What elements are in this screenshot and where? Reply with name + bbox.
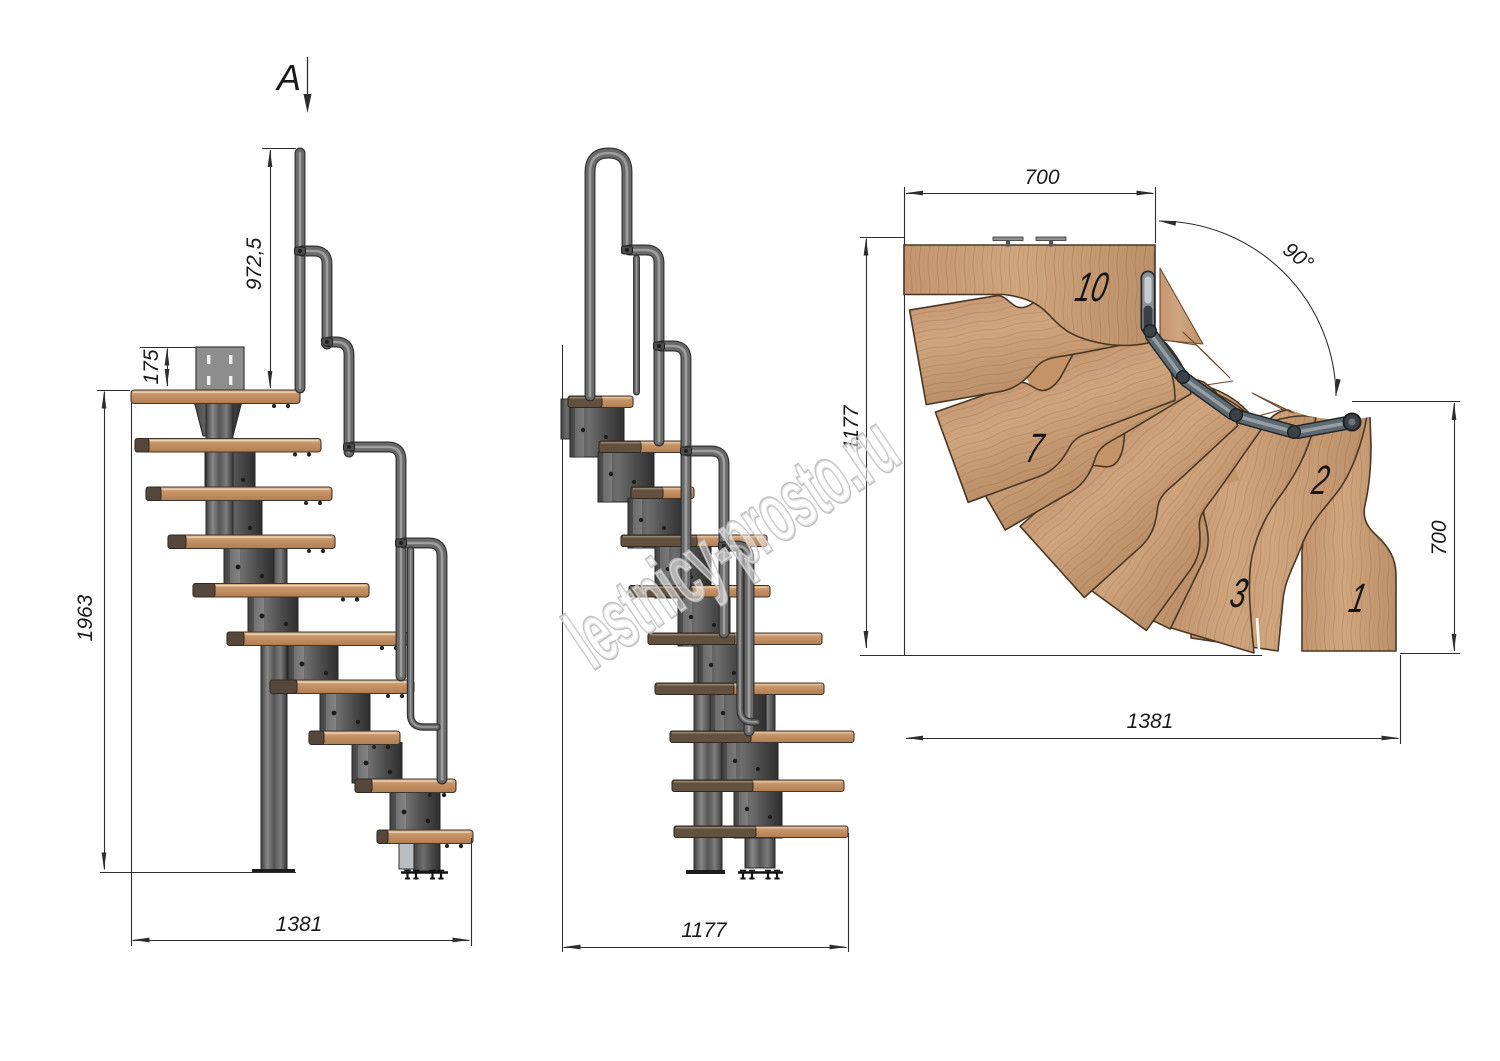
- svg-text:1963: 1963: [74, 594, 97, 641]
- svg-text:175: 175: [140, 349, 163, 384]
- svg-text:972,5: 972,5: [243, 237, 266, 290]
- svg-text:A: A: [275, 57, 301, 98]
- svg-text:700: 700: [1024, 166, 1059, 189]
- svg-text:700: 700: [1428, 520, 1451, 555]
- svg-text:1381: 1381: [1127, 710, 1174, 733]
- svg-text:1177: 1177: [681, 919, 727, 942]
- svg-text:1381: 1381: [276, 913, 323, 936]
